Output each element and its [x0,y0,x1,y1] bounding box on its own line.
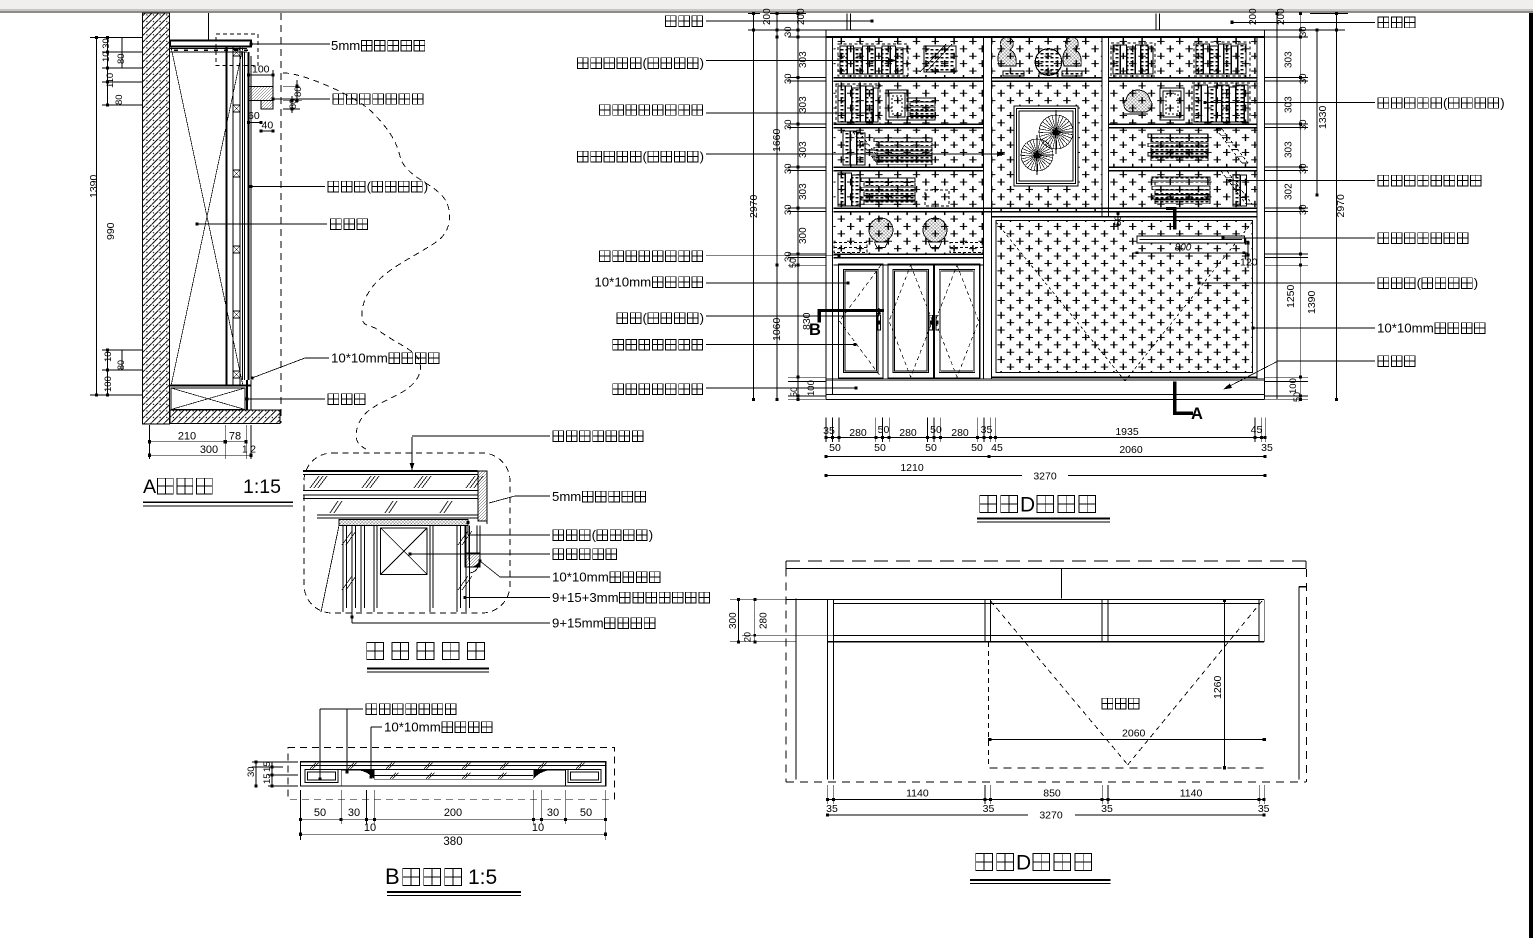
svg-text:300: 300 [798,227,809,244]
svg-text:): ) [1500,96,1504,111]
svg-text:50: 50 [580,807,592,819]
svg-text:30: 30 [783,204,794,215]
svg-text:10*10mm: 10*10mm [331,351,388,366]
svg-text:280: 280 [899,427,917,439]
svg-text:): ) [424,179,428,194]
svg-text:10: 10 [532,822,544,834]
svg-text:): ) [1474,276,1478,291]
svg-text:2060: 2060 [1122,728,1146,740]
svg-text:303: 303 [798,51,809,68]
svg-text:280: 280 [849,427,867,439]
svg-text:D: D [1020,493,1035,516]
svg-text:30: 30 [1298,73,1309,84]
svg-text:50: 50 [829,442,841,454]
svg-text:50: 50 [789,387,799,397]
svg-text:100: 100 [252,64,270,76]
svg-text:80: 80 [116,53,127,64]
svg-text:1:15: 1:15 [243,476,281,498]
svg-text:850: 850 [1043,787,1061,799]
svg-text:303: 303 [1284,51,1295,68]
svg-text:78: 78 [229,431,241,443]
svg-text:10*10mm: 10*10mm [552,570,609,585]
svg-text:): ) [700,149,704,164]
svg-text:5mm: 5mm [331,38,360,53]
svg-text:60: 60 [248,110,260,122]
svg-text:2970: 2970 [1335,194,1347,218]
svg-text:200: 200 [1248,8,1259,25]
svg-text:(: ( [1417,276,1422,291]
svg-text:800: 800 [1175,243,1192,254]
svg-text:80: 80 [114,94,125,105]
svg-text:100: 100 [806,380,817,396]
svg-text:35: 35 [981,424,993,436]
svg-text:50: 50 [930,424,942,436]
svg-text:110: 110 [105,73,116,88]
svg-text:50: 50 [878,424,890,436]
svg-text:1140: 1140 [1180,787,1203,799]
svg-text:35: 35 [1258,803,1270,815]
svg-text:1260: 1260 [1212,675,1224,699]
svg-text:2970: 2970 [748,194,760,218]
svg-text:30: 30 [1298,204,1309,215]
svg-text:10*10mm: 10*10mm [1377,321,1434,336]
svg-text:1660: 1660 [771,128,783,152]
svg-text:303: 303 [1284,96,1295,113]
svg-text:30: 30 [1298,163,1309,174]
svg-text:1390: 1390 [1306,290,1318,314]
svg-text:50: 50 [1113,215,1124,226]
svg-text:210: 210 [178,431,196,443]
svg-text:1330: 1330 [1317,105,1329,129]
svg-text:35: 35 [1101,803,1113,815]
svg-text:30: 30 [246,766,257,777]
svg-text:30: 30 [1298,26,1309,37]
svg-text:1:5: 1:5 [468,866,497,889]
svg-text:10*10mm: 10*10mm [384,720,441,735]
svg-text:10: 10 [103,351,114,362]
svg-text:30: 30 [783,73,794,84]
svg-text:990: 990 [105,222,117,240]
svg-text:40: 40 [262,120,274,132]
svg-text:50: 50 [874,442,886,454]
svg-text:830: 830 [801,312,813,330]
svg-text:35: 35 [1261,442,1273,454]
svg-text:380: 380 [443,836,462,848]
svg-text:200: 200 [796,8,807,25]
svg-text:35: 35 [823,425,835,437]
svg-text:50: 50 [971,442,983,454]
svg-text:80: 80 [293,86,304,97]
svg-text:80: 80 [116,360,126,370]
svg-text:1390: 1390 [88,174,100,198]
svg-text:10 30: 10 30 [101,38,112,62]
svg-text:302: 302 [1284,183,1295,200]
svg-text:9+15mm: 9+15mm [552,616,604,631]
svg-text:1140: 1140 [906,787,929,799]
svg-text:30: 30 [783,26,794,37]
svg-text:(: ( [1443,96,1448,111]
svg-text:45: 45 [1251,424,1263,436]
svg-text:2060: 2060 [1119,444,1143,456]
svg-text:3270: 3270 [1039,810,1063,822]
svg-text:(: ( [592,528,597,543]
svg-text:A: A [1191,405,1203,423]
svg-text:30: 30 [547,807,559,819]
svg-text:280: 280 [951,427,969,439]
svg-text:): ) [700,56,704,71]
svg-text:45: 45 [991,442,1003,454]
svg-text:1210: 1210 [900,462,924,474]
svg-text:30: 30 [1298,119,1309,130]
svg-text:200: 200 [1276,8,1287,25]
svg-text:303: 303 [798,96,809,113]
svg-text:(: ( [643,149,648,164]
svg-text:15: 15 [262,773,273,784]
svg-text:1 2: 1 2 [242,445,256,456]
svg-text:1060: 1060 [771,317,783,341]
svg-text:30: 30 [783,163,794,174]
svg-text:A: A [143,476,156,498]
svg-text:20: 20 [743,632,753,642]
svg-text:3270: 3270 [1033,471,1057,483]
svg-text:5mm: 5mm [552,489,581,504]
svg-text:50: 50 [314,807,326,819]
svg-text:303: 303 [1284,141,1295,158]
svg-text:(: ( [643,311,648,326]
svg-text:30: 30 [348,807,360,819]
svg-text:35: 35 [826,803,838,815]
svg-text:35: 35 [983,803,995,815]
svg-text:30: 30 [783,119,794,130]
svg-text:10*10mm: 10*10mm [594,275,651,290]
svg-text:10: 10 [364,822,376,834]
svg-text:100: 100 [103,376,114,392]
svg-text:300: 300 [200,444,218,456]
svg-text:D: D [1016,851,1031,874]
svg-text:50: 50 [788,258,798,268]
svg-text:50: 50 [925,442,937,454]
svg-text:303: 303 [798,183,809,200]
svg-text:(: ( [367,179,372,194]
svg-text:200: 200 [762,8,773,25]
svg-text:120: 120 [1240,257,1258,269]
svg-text:50: 50 [1292,392,1302,402]
svg-text:1250: 1250 [1285,284,1297,308]
svg-text:80: 80 [288,99,298,109]
svg-text:9+15+3mm: 9+15+3mm [552,590,619,605]
svg-text:): ) [649,528,653,543]
svg-text:15: 15 [262,761,273,772]
svg-text:): ) [700,311,704,326]
svg-text:1935: 1935 [1115,426,1139,438]
svg-text:280: 280 [759,612,770,629]
svg-text:303: 303 [798,141,809,158]
svg-text:300: 300 [728,612,739,629]
svg-text:100: 100 [1288,378,1299,394]
svg-text:(: ( [643,56,648,71]
svg-text:200: 200 [444,807,462,819]
svg-text:B: B [385,864,400,889]
